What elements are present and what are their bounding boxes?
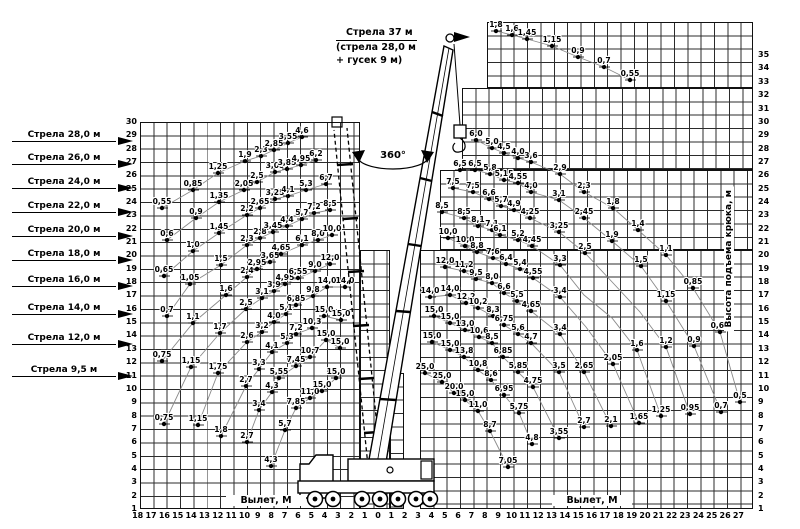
y-tick-right-21: 21 (758, 237, 780, 247)
y-tick-left-5: 5 (119, 451, 137, 461)
y-tick-left-24: 24 (119, 197, 137, 207)
y-tick-left-14: 14 (119, 330, 137, 340)
y-tick-right-5: 5 (758, 451, 780, 461)
y-tick-right-26: 26 (758, 170, 780, 180)
y-axis-label-right: Высота подъема крюка, м (724, 186, 734, 331)
y-tick-right-34: 34 (758, 63, 780, 73)
y-tick-right-35: 35 (758, 50, 780, 60)
y-tick-left-7: 7 (119, 424, 137, 434)
y-tick-left-25: 25 (119, 184, 137, 194)
y-tick-right-24: 24 (758, 197, 780, 207)
y-tick-right-2: 2 (758, 491, 780, 501)
y-tick-right-11: 11 (758, 371, 780, 381)
dashed-boom-tip (332, 117, 342, 127)
y-tick-left-28: 28 (119, 144, 137, 154)
y-tick-right-20: 20 (758, 250, 780, 260)
y-tick-left-18: 18 (119, 277, 137, 287)
y-tick-left-10: 10 (119, 384, 137, 394)
boom-label-5: Стрела 18,0 м (12, 249, 116, 261)
y-tick-right-9: 9 (758, 397, 780, 407)
y-tick-right-10: 10 (758, 384, 780, 394)
y-tick-right-29: 29 (758, 130, 780, 140)
boom-label-9: Стрела 9,5 м (12, 365, 116, 377)
boom-37-note-line2: (стрела 28,0 м (336, 41, 496, 54)
y-tick-left-3: 3 (119, 477, 137, 487)
y-tick-right-27: 27 (758, 157, 780, 167)
y-tick-right-18: 18 (758, 277, 780, 287)
y-tick-left-9: 9 (119, 397, 137, 407)
y-tick-left-16: 16 (119, 304, 137, 314)
y-tick-left-22: 22 (119, 224, 137, 234)
y-tick-right-22: 22 (758, 224, 780, 234)
x-axis-label-right: Вылет, М (552, 495, 632, 506)
y-tick-right-14: 14 (758, 330, 780, 340)
y-tick-left-20: 20 (119, 250, 137, 260)
y-tick-left-4: 4 (119, 464, 137, 474)
y-tick-right-19: 19 (758, 264, 780, 274)
x-axis-label-left: Вылет, М (226, 495, 306, 506)
y-tick-right-31: 31 (758, 104, 780, 114)
y-tick-left-17: 17 (119, 290, 137, 300)
y-tick-left-23: 23 (119, 210, 137, 220)
y-tick-right-15: 15 (758, 317, 780, 327)
y-tick-right-33: 33 (758, 77, 780, 87)
y-tick-right-32: 32 (758, 90, 780, 100)
y-tick-left-21: 21 (119, 237, 137, 247)
y-tick-left-29: 29 (119, 130, 137, 140)
y-tick-right-1: 1 (758, 504, 780, 514)
crane-boom-dashed-collars (337, 164, 379, 433)
hook-block (454, 125, 466, 138)
y-tick-left-19: 19 (119, 264, 137, 274)
crane-load-height-diagram: { "note": {"line1": "Стрела 37 м", "line… (0, 0, 800, 529)
y-tick-right-16: 16 (758, 304, 780, 314)
y-tick-left-27: 27 (119, 157, 137, 167)
y-tick-left-30: 30 (119, 117, 137, 127)
boom-label-6: Стрела 16,0 м (12, 275, 116, 287)
y-tick-right-6: 6 (758, 437, 780, 447)
y-tick-left-8: 8 (119, 411, 137, 421)
y-tick-left-6: 6 (119, 437, 137, 447)
boom-label-0: Стрела 28,0 м (12, 130, 116, 142)
y-tick-left-26: 26 (119, 170, 137, 180)
boom-37-note-line3: + гусек 9 м) (336, 54, 496, 67)
y-tick-right-4: 4 (758, 464, 780, 474)
rotation-360-widget: 360° (350, 148, 436, 182)
y-tick-right-8: 8 (758, 411, 780, 421)
y-tick-left-13: 13 (119, 344, 137, 354)
boom-37-note-line1: Стрела 37 м (336, 26, 417, 41)
boom-label-7: Стрела 14,0 м (12, 303, 116, 315)
y-tick-left-2: 2 (119, 491, 137, 501)
boom-label-2: Стрела 24,0 м (12, 177, 116, 189)
boom-label-1: Стрела 26,0 м (12, 153, 116, 165)
y-tick-right-3: 3 (758, 477, 780, 487)
y-tick-right-7: 7 (758, 424, 780, 434)
y-tick-right-25: 25 (758, 184, 780, 194)
rotation-label: 360° (350, 150, 436, 161)
y-tick-left-12: 12 (119, 357, 137, 367)
y-tick-right-28: 28 (758, 144, 780, 154)
y-tick-right-17: 17 (758, 290, 780, 300)
y-tick-right-13: 13 (758, 344, 780, 354)
boom-label-3: Стрела 22,0 м (12, 201, 116, 213)
y-tick-right-23: 23 (758, 210, 780, 220)
boom-label-4: Стрела 20,0 м (12, 225, 116, 237)
boom-label-8: Стрела 12,0 м (12, 333, 116, 345)
crane-boom-main (364, 46, 453, 487)
boom-37-note: Стрела 37 м (стрела 28,0 м + гусек 9 м) (336, 26, 496, 67)
x-tick-right-27: 27 (728, 511, 748, 521)
y-tick-left-15: 15 (119, 317, 137, 327)
hook-icon (453, 138, 465, 152)
y-tick-right-12: 12 (758, 357, 780, 367)
y-tick-right-30: 30 (758, 117, 780, 127)
y-tick-left-11: 11 (119, 371, 137, 381)
